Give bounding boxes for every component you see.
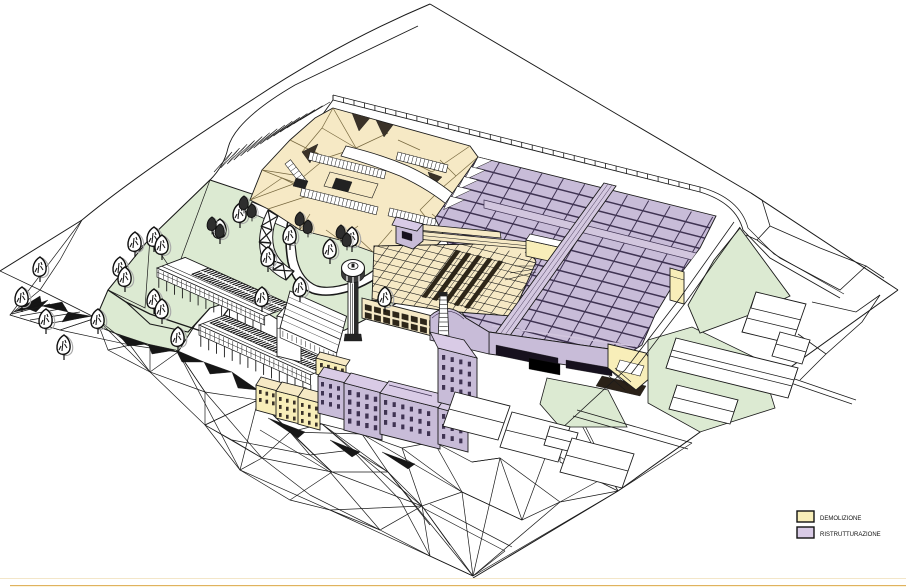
- svg-text:RISTRUTTURAZIONE: RISTRUTTURAZIONE: [820, 532, 881, 538]
- svg-text:DEMOLIZIONE: DEMOLIZIONE: [820, 516, 861, 522]
